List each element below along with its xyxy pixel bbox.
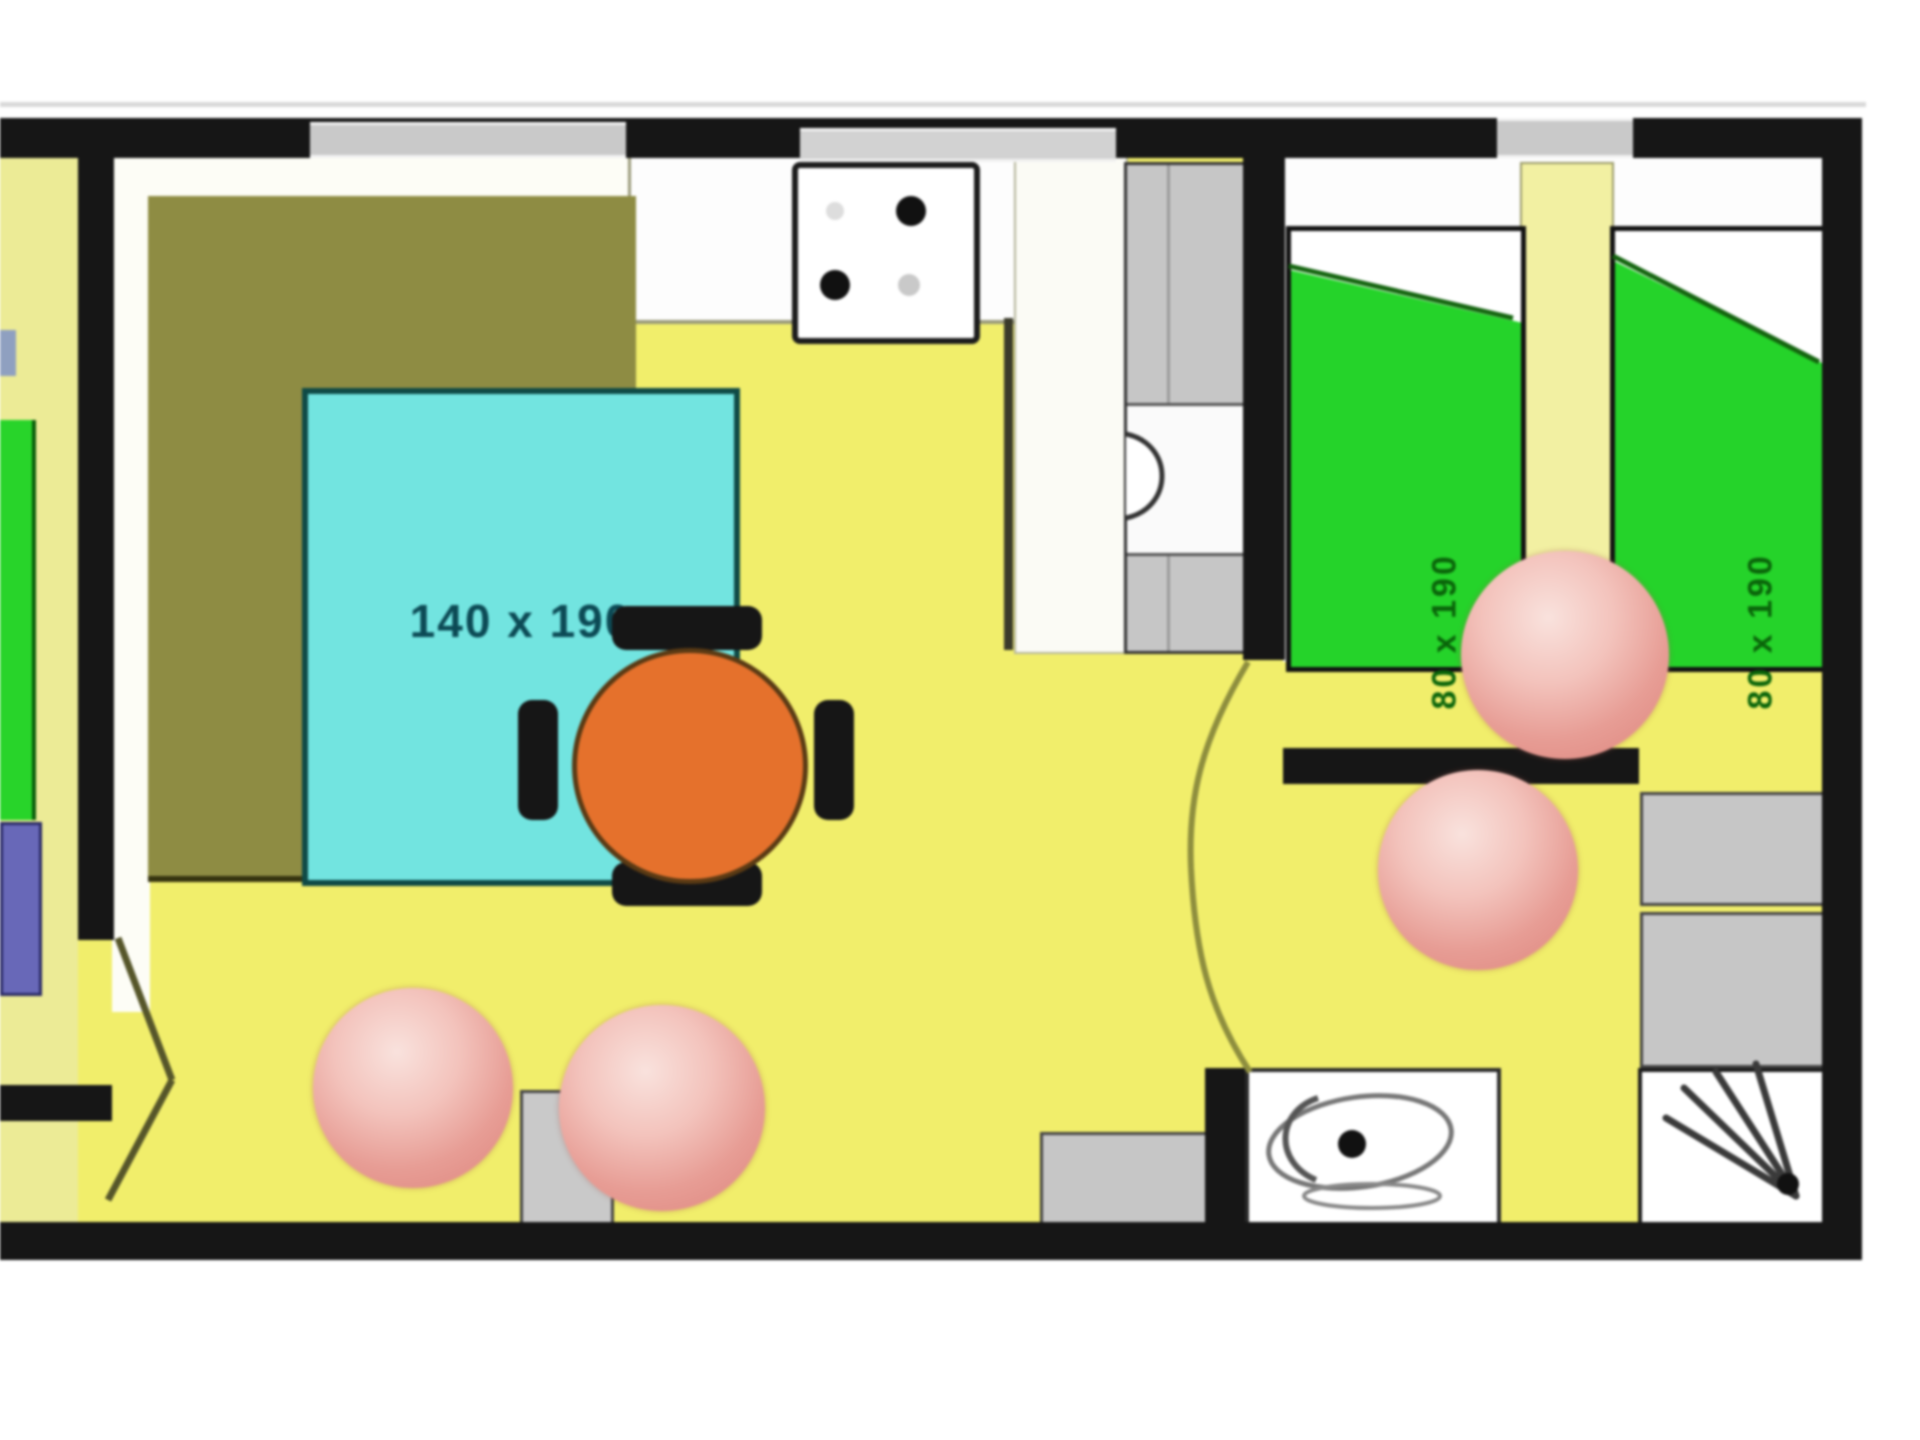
floor-plan: 140 x 190 80 x 190 80 x 190 [0, 0, 1920, 1440]
shower-spray-icon [1666, 1064, 1796, 1196]
pink-marker-icon [313, 988, 513, 1188]
cabinet-handle-icon [1126, 434, 1162, 518]
pink-marker-icon [1378, 770, 1578, 970]
pink-marker-icon [1461, 551, 1669, 759]
shower-drain-icon [1777, 1173, 1799, 1195]
door-leaf-icon [118, 938, 172, 1080]
bed-fold-line [1613, 256, 1819, 362]
bed-fold-line [1289, 266, 1513, 318]
door-arc-icon [1191, 662, 1248, 868]
door-leaf-icon [108, 1080, 172, 1200]
floor-plan-image: 140 x 190 80 x 190 80 x 190 [0, 0, 1920, 1440]
faucet-icon [1338, 1130, 1366, 1158]
pink-marker-icon [559, 1005, 765, 1211]
door-arc-icon [1191, 868, 1250, 1072]
